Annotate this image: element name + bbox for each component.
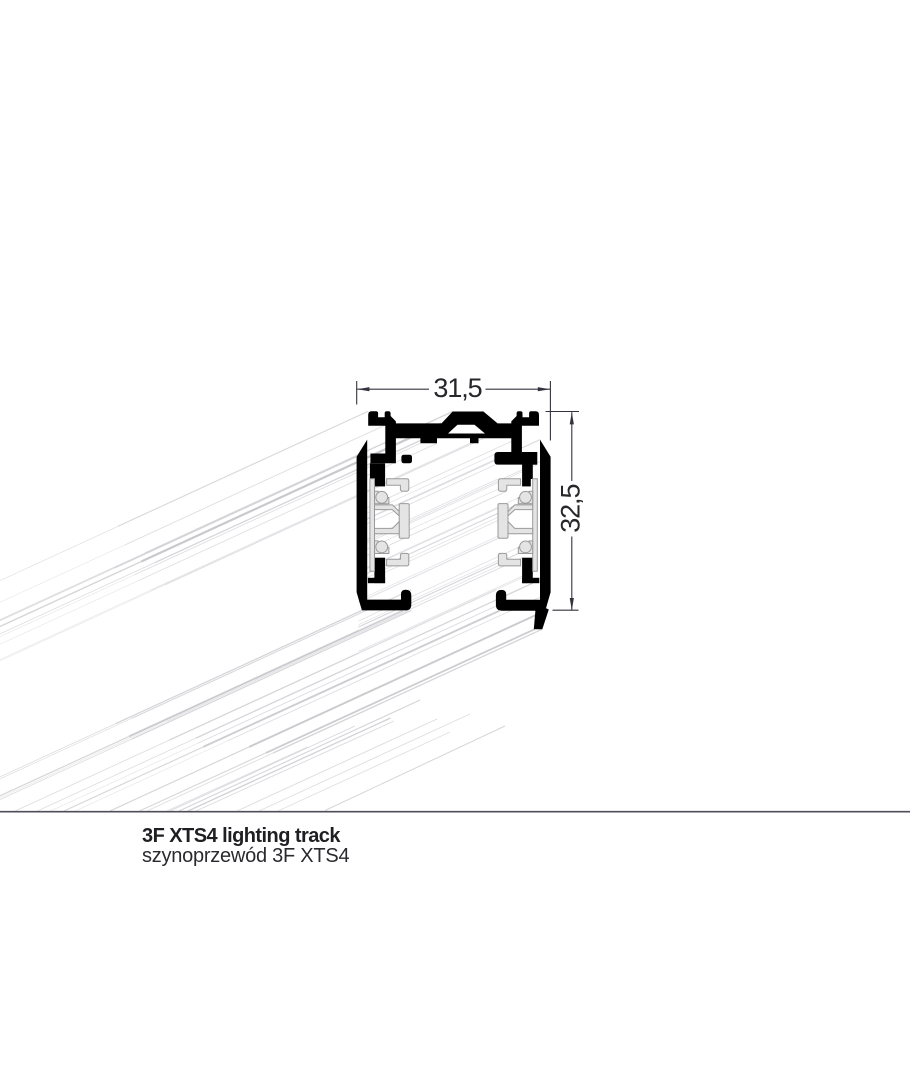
svg-text:31,5: 31,5 bbox=[433, 373, 481, 403]
svg-text:32,5: 32,5 bbox=[556, 485, 586, 533]
